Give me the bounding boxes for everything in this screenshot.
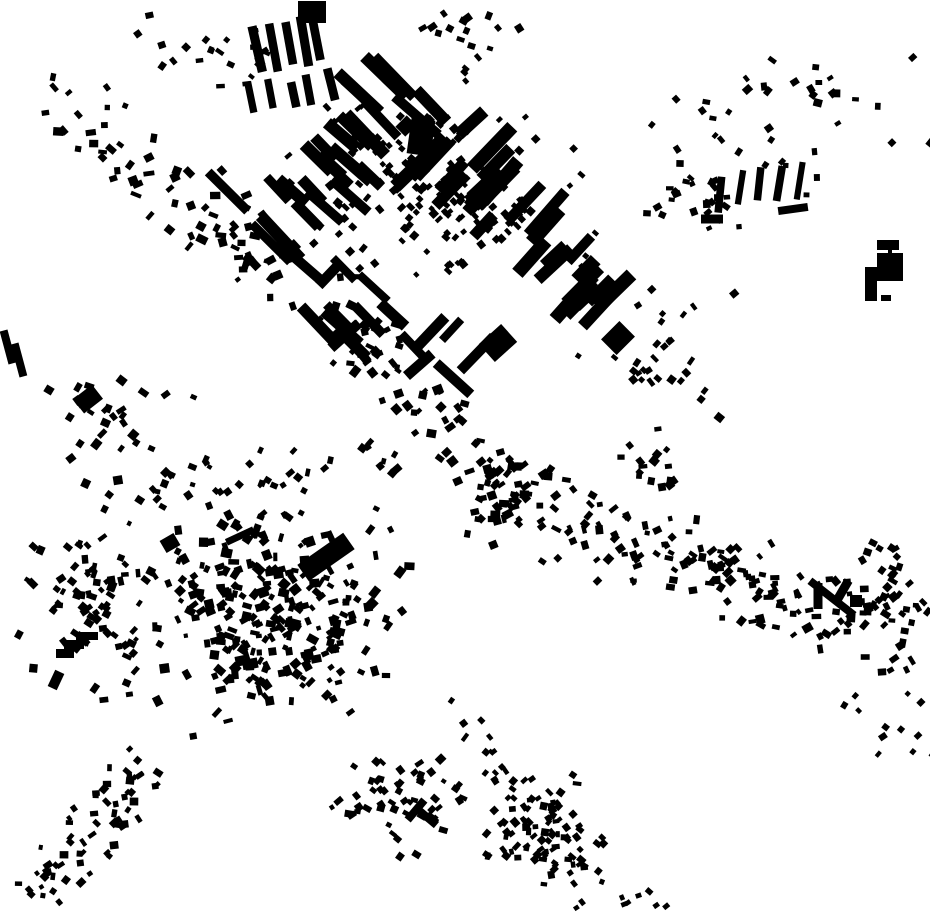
building-footprint xyxy=(227,626,238,634)
building-footprint xyxy=(363,618,370,627)
building-footprint xyxy=(382,673,390,678)
building-footprint xyxy=(153,767,164,777)
building-footprint xyxy=(246,559,253,569)
building-footprint xyxy=(285,468,295,478)
building-footprint xyxy=(509,806,516,812)
building-footprint xyxy=(755,614,766,625)
building-footprint xyxy=(536,503,543,509)
building-footprint xyxy=(261,549,273,561)
building-footprint xyxy=(632,358,641,368)
building-footprint xyxy=(152,494,161,503)
landmark-tr-dash-a xyxy=(701,215,723,224)
building-footprint xyxy=(905,579,914,588)
building-footprint xyxy=(658,211,667,220)
building-footprint xyxy=(379,397,387,405)
building-footprint xyxy=(242,602,253,610)
building-footprint xyxy=(273,553,277,562)
building-footprint xyxy=(540,882,547,887)
building-footprint xyxy=(183,166,196,179)
building-footprint xyxy=(570,879,578,887)
building-footprint xyxy=(486,490,497,501)
building-footprint xyxy=(889,654,900,664)
building-footprint xyxy=(130,798,139,806)
building-footprint xyxy=(652,339,661,348)
building-footprint xyxy=(210,192,220,200)
building-footprint xyxy=(350,762,358,770)
building-footprint xyxy=(673,144,682,153)
building-footprint xyxy=(531,134,541,144)
landmark-topright-link xyxy=(888,248,892,258)
building-footprint xyxy=(619,894,625,901)
building-footprint xyxy=(385,822,392,829)
building-footprint xyxy=(718,553,728,562)
building-footprint xyxy=(355,264,364,273)
building-footprint xyxy=(247,692,257,700)
building-footprint xyxy=(209,650,219,660)
building-footprint xyxy=(464,530,471,538)
building-footprint xyxy=(49,82,59,92)
building-footprint xyxy=(515,482,523,488)
building-footprint xyxy=(477,484,484,491)
building-footprint xyxy=(662,902,670,910)
building-footprint xyxy=(127,428,139,441)
building-footprint xyxy=(67,576,77,586)
building-footprint xyxy=(40,893,46,899)
building-footprint xyxy=(556,787,566,797)
building-footprint xyxy=(594,867,603,876)
building-footprint xyxy=(205,501,213,510)
building-footprint xyxy=(235,276,242,282)
building-footprint xyxy=(698,106,707,115)
building-footprint xyxy=(462,77,469,84)
building-footprint xyxy=(490,776,499,786)
building-footprint xyxy=(143,152,155,163)
building-footprint xyxy=(514,145,524,155)
building-footprint xyxy=(346,563,354,571)
building-footprint xyxy=(53,585,62,593)
building-footprint xyxy=(423,248,430,255)
building-footprint xyxy=(449,197,458,206)
building-footprint xyxy=(569,144,578,153)
building-footprint xyxy=(476,239,486,249)
building-footprint xyxy=(171,199,179,208)
building-footprint xyxy=(567,182,574,189)
building-footprint xyxy=(503,835,508,840)
building-footprint xyxy=(183,633,188,638)
building-footprint xyxy=(189,572,198,581)
building-footprint xyxy=(397,203,406,212)
building-footprint xyxy=(373,551,379,561)
building-footprint xyxy=(897,725,905,733)
building-footprint xyxy=(130,191,142,199)
building-footprint xyxy=(223,487,233,497)
building-footprint xyxy=(709,115,717,121)
building-footprint xyxy=(143,170,155,176)
building-footprint xyxy=(474,516,480,522)
building-footprint xyxy=(395,787,404,796)
building-footprint xyxy=(676,160,684,167)
building-footprint xyxy=(593,556,601,563)
building-footprint xyxy=(370,258,380,268)
building-footprint xyxy=(205,169,251,215)
building-footprint xyxy=(499,500,509,507)
building-footprint xyxy=(861,654,870,660)
building-footprint xyxy=(644,530,650,535)
building-footprint xyxy=(131,666,140,676)
building-footprint xyxy=(426,429,437,439)
building-footprint xyxy=(357,668,365,675)
building-footprint xyxy=(63,542,73,552)
building-footprint xyxy=(169,56,178,65)
building-footprint xyxy=(220,547,233,558)
building-footprint xyxy=(482,829,492,839)
building-footprint xyxy=(134,814,142,823)
building-footprint xyxy=(550,490,561,501)
building-footprint xyxy=(568,537,577,546)
building-footprint xyxy=(100,418,111,429)
building-footprint xyxy=(817,644,824,654)
building-footprint xyxy=(109,175,118,183)
building-footprint xyxy=(368,585,381,599)
building-footprint xyxy=(116,141,124,149)
building-footprint xyxy=(827,75,834,82)
building-footprint xyxy=(75,145,82,152)
building-footprint xyxy=(486,733,493,741)
building-footprint xyxy=(549,503,559,512)
building-footprint xyxy=(454,106,488,139)
building-footprint xyxy=(743,75,750,83)
building-footprint xyxy=(341,76,376,109)
building-footprint xyxy=(329,804,335,810)
building-footprint xyxy=(580,540,589,550)
building-footprint xyxy=(190,394,198,401)
building-footprint xyxy=(882,582,893,593)
building-footprint xyxy=(189,732,197,740)
building-footprint xyxy=(880,609,892,620)
building-footprint xyxy=(196,58,204,63)
building-footprint xyxy=(363,602,373,612)
building-footprint xyxy=(415,201,423,210)
building-footprint xyxy=(551,844,560,850)
building-footprint xyxy=(117,554,126,562)
building-footprint xyxy=(860,585,869,592)
building-footprint xyxy=(642,521,649,530)
building-footprint xyxy=(512,841,521,851)
building-footprint xyxy=(713,412,725,424)
building-footprint xyxy=(667,533,676,542)
building-footprint xyxy=(152,695,164,708)
building-footprint xyxy=(551,525,562,533)
building-footprint xyxy=(736,615,747,626)
building-footprint xyxy=(333,796,344,806)
building-footprint xyxy=(217,165,228,176)
building-footprint xyxy=(756,553,763,560)
building-footprint xyxy=(749,581,757,588)
map-viewport xyxy=(0,0,930,924)
building-footprint xyxy=(597,502,603,508)
building-footprint xyxy=(790,611,797,617)
building-footprint xyxy=(92,563,98,571)
building-footprint xyxy=(734,147,743,157)
building-footprint xyxy=(316,625,322,631)
building-footprint xyxy=(625,441,634,450)
building-footprint xyxy=(650,354,659,363)
building-footprint xyxy=(486,45,493,51)
building-footprint xyxy=(754,167,765,201)
building-footprint xyxy=(97,428,108,439)
building-footprint xyxy=(748,575,755,581)
building-footprint xyxy=(145,11,154,19)
building-footprint xyxy=(489,805,499,815)
building-footprint xyxy=(414,759,424,768)
building-footprint xyxy=(78,591,86,600)
building-footprint xyxy=(648,121,656,129)
building-footprint xyxy=(155,489,161,495)
building-footprint xyxy=(346,360,355,366)
building-footprint xyxy=(369,786,377,794)
building-footprint xyxy=(391,450,399,458)
building-footprint xyxy=(356,271,390,304)
building-footprint xyxy=(367,777,375,786)
building-footprint xyxy=(569,485,578,494)
building-footprint xyxy=(488,516,495,522)
building-footprint xyxy=(693,515,700,525)
building-footprint xyxy=(300,487,308,495)
building-footprint xyxy=(223,509,234,521)
building-footprint xyxy=(426,767,436,777)
building-footprint xyxy=(698,553,707,562)
building-footprint xyxy=(81,555,88,564)
building-footprint xyxy=(215,685,227,694)
building-footprint xyxy=(587,490,597,500)
building-footprint xyxy=(284,152,292,160)
building-footprint xyxy=(106,591,116,600)
building-footprint xyxy=(125,160,135,171)
building-footprint xyxy=(89,682,100,693)
building-footprint xyxy=(657,318,665,326)
building-footprint xyxy=(309,604,316,611)
landmark-staircase-building xyxy=(56,632,98,658)
building-footprint xyxy=(101,122,108,128)
building-footprint xyxy=(687,356,695,365)
building-footprint xyxy=(682,178,690,184)
landmark-west-bold-bar xyxy=(48,670,65,691)
building-footprint xyxy=(270,482,279,490)
building-footprint xyxy=(815,80,822,85)
building-footprint xyxy=(302,74,316,106)
building-footprint xyxy=(903,666,910,674)
building-footprint xyxy=(661,541,667,547)
building-footprint xyxy=(289,697,294,705)
building-footprint xyxy=(509,817,520,828)
building-footprint xyxy=(481,748,490,757)
building-footprint xyxy=(393,388,404,399)
building-footprint xyxy=(363,193,372,202)
building-footprint xyxy=(381,458,387,465)
building-footprint xyxy=(504,228,512,236)
building-footprint xyxy=(900,627,909,634)
building-footprint xyxy=(186,200,197,211)
building-footprint xyxy=(187,232,195,241)
building-footprint xyxy=(89,140,98,148)
building-footprint xyxy=(97,533,107,542)
building-footprint xyxy=(804,192,810,197)
building-footprint xyxy=(138,387,150,398)
building-footprint xyxy=(796,572,804,581)
building-footprint xyxy=(234,480,243,489)
building-footprint xyxy=(212,223,221,233)
building-footprint xyxy=(562,477,571,483)
building-footprint xyxy=(599,879,605,886)
building-footprint xyxy=(335,679,343,685)
building-footprint xyxy=(496,448,505,456)
building-footprint xyxy=(767,136,775,144)
building-footprint xyxy=(688,586,697,594)
building-footprint xyxy=(844,629,851,635)
building-footprint xyxy=(767,539,775,548)
building-footprint xyxy=(875,750,882,757)
building-footprint xyxy=(160,479,170,489)
building-footprint xyxy=(327,582,335,589)
building-footprint xyxy=(456,36,465,43)
building-footprint xyxy=(832,608,840,615)
building-footprint xyxy=(199,562,205,569)
building-footprint xyxy=(178,598,184,604)
building-footprint xyxy=(245,459,254,468)
building-footprint xyxy=(813,98,823,108)
building-footprint xyxy=(592,229,599,236)
building-footprint xyxy=(293,472,303,482)
building-footprint xyxy=(125,776,134,784)
landmark-tr-dash-b xyxy=(778,203,809,215)
building-footprint xyxy=(49,887,57,895)
building-footprint xyxy=(65,453,76,464)
building-footprint xyxy=(875,103,881,110)
building-footprint xyxy=(366,367,378,379)
building-footprint xyxy=(645,887,654,896)
building-footprint xyxy=(652,202,662,211)
building-footprint xyxy=(223,718,233,724)
building-footprint xyxy=(397,606,407,617)
building-footprint xyxy=(406,202,415,211)
building-footprint xyxy=(289,447,297,455)
building-footprint xyxy=(152,622,157,631)
building-footprint xyxy=(122,678,132,687)
building-footprint xyxy=(103,83,111,92)
building-footprint xyxy=(608,504,618,514)
building-footprint xyxy=(99,696,108,703)
landmark-district-south-block xyxy=(479,324,517,362)
building-footprint xyxy=(528,775,537,783)
building-footprint xyxy=(545,788,554,797)
building-footprint xyxy=(184,241,193,251)
building-footprint xyxy=(285,647,293,656)
building-footprint xyxy=(287,81,301,108)
building-footprint xyxy=(438,826,448,834)
building-footprint xyxy=(834,120,841,127)
building-footprint xyxy=(115,374,127,386)
building-footprint xyxy=(573,781,582,786)
building-footprint xyxy=(326,677,332,683)
building-footprint xyxy=(852,97,859,102)
figure-ground-map xyxy=(0,0,930,924)
building-footprint xyxy=(486,457,493,464)
building-footprint xyxy=(508,785,516,793)
building-footprint xyxy=(109,841,118,850)
building-footprint xyxy=(250,647,256,655)
building-footprint xyxy=(85,129,96,136)
building-footprint xyxy=(278,588,290,598)
building-footprint xyxy=(638,376,645,383)
building-footprint xyxy=(226,60,235,68)
building-footprint xyxy=(680,311,688,319)
landmark-topright-tower xyxy=(865,267,877,301)
building-footprint xyxy=(362,804,372,813)
building-footprint xyxy=(361,645,371,656)
building-footprint xyxy=(812,614,822,620)
building-footprint xyxy=(831,627,841,636)
building-footprint xyxy=(306,633,319,645)
building-footprint xyxy=(55,898,63,906)
building-footprint xyxy=(697,544,704,552)
building-footprint xyxy=(586,500,595,509)
building-footprint xyxy=(724,195,731,200)
building-footprint xyxy=(523,845,529,852)
building-footprint xyxy=(346,708,356,717)
building-footprint xyxy=(359,244,368,254)
building-footprint xyxy=(669,576,678,584)
building-footprint xyxy=(336,667,346,677)
building-footprint xyxy=(719,615,725,620)
building-footprint xyxy=(298,509,305,516)
building-footprint xyxy=(467,42,476,50)
building-footprint xyxy=(239,266,248,272)
building-footprint xyxy=(157,41,166,50)
building-footprint xyxy=(145,211,154,221)
building-footprint xyxy=(119,418,128,428)
building-footprint xyxy=(397,192,404,200)
building-footprint xyxy=(919,598,928,607)
building-footprint xyxy=(593,576,603,586)
building-footprint xyxy=(743,570,749,577)
building-footprint xyxy=(99,625,108,632)
building-footprint xyxy=(914,731,923,740)
building-footprint xyxy=(863,547,873,556)
building-footprint xyxy=(520,776,528,784)
building-footprint xyxy=(107,576,116,586)
building-footprint xyxy=(257,574,266,583)
building-footprint xyxy=(267,294,273,301)
building-footprint xyxy=(837,617,845,625)
building-footprint xyxy=(83,541,91,549)
building-footprint xyxy=(114,167,121,175)
building-footprint xyxy=(375,204,385,214)
building-footprint xyxy=(840,701,848,710)
building-footprint xyxy=(80,478,91,489)
building-footprint xyxy=(161,390,171,400)
building-footprint xyxy=(256,634,262,639)
building-footprint xyxy=(576,846,583,853)
building-footprint xyxy=(522,113,529,120)
building-footprint xyxy=(337,273,344,281)
building-footprint xyxy=(354,809,361,814)
building-footprint xyxy=(152,783,159,790)
building-footprint xyxy=(183,490,193,501)
building-footprint xyxy=(107,764,112,771)
building-footprint xyxy=(349,365,362,378)
building-footprint xyxy=(309,239,319,249)
building-footprint xyxy=(14,629,24,639)
